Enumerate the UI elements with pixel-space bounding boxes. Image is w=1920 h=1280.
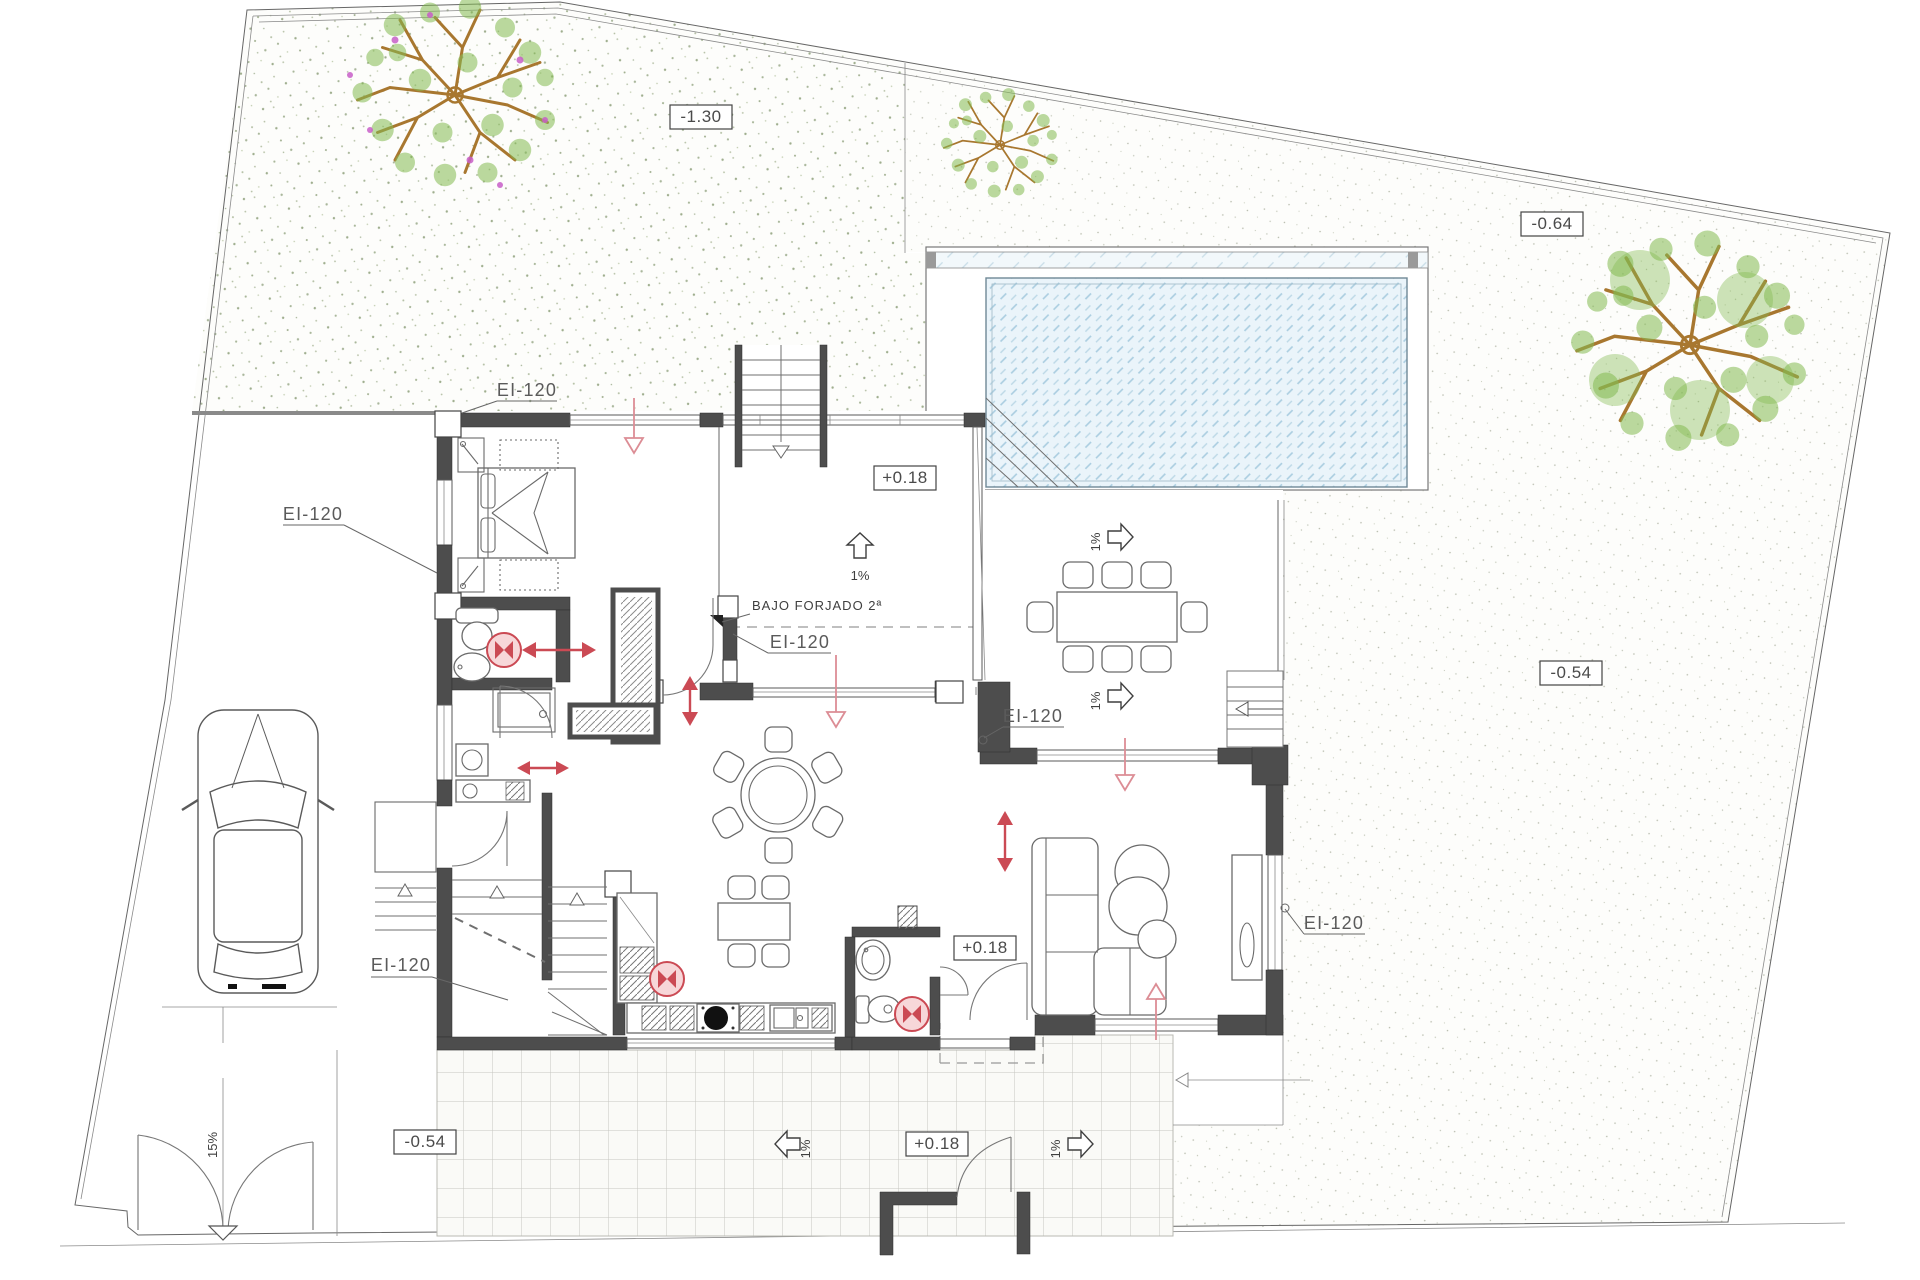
toilet-tank	[456, 608, 498, 623]
ramp-slope-label: 15%	[205, 1132, 220, 1158]
floor-plan-canvas: 1% 1% 1% 1% 1% 15% -1.30 -0.64 -0.54 -0.…	[0, 0, 1920, 1280]
svg-text:BAJO FORJADO 2ª: BAJO FORJADO 2ª	[752, 598, 882, 613]
extractor-fan-symbol	[650, 962, 684, 996]
svg-text:+0.18: +0.18	[914, 1134, 960, 1153]
floor-plan-page: 1% 1% 1% 1% 1% 15% -1.30 -0.64 -0.54 -0.…	[0, 0, 1920, 1280]
level-badge: +0.18	[954, 936, 1016, 960]
svg-text:EI-120: EI-120	[371, 955, 431, 975]
car	[182, 710, 334, 993]
slope-label: 1%	[1048, 1139, 1063, 1158]
slope-label: 1%	[1088, 691, 1103, 710]
extractor-fan-symbol	[895, 997, 929, 1031]
svg-text:EI-120: EI-120	[770, 632, 830, 652]
swimming-pool-basin	[986, 278, 1407, 487]
pool-walkway-band	[926, 252, 1428, 268]
svg-text:-0.64: -0.64	[1531, 214, 1572, 233]
level-badge: -0.64	[1521, 212, 1583, 236]
bed	[478, 468, 575, 558]
level-badge: +0.18	[874, 466, 936, 490]
extractor-fan-symbol	[487, 633, 521, 667]
svg-text:-0.54: -0.54	[404, 1132, 445, 1151]
svg-text:+0.18: +0.18	[882, 468, 928, 487]
kitchen-cabinet	[642, 1006, 666, 1030]
coffee-table	[1138, 920, 1176, 958]
washing-machine	[456, 744, 488, 776]
slope-label: 1%	[1088, 532, 1103, 551]
svg-text:-0.54: -0.54	[1550, 663, 1591, 682]
svg-text:EI-120: EI-120	[497, 380, 557, 400]
level-badge: +0.18	[906, 1132, 968, 1156]
bathroom-sink	[454, 653, 490, 681]
toilet-tank	[856, 996, 869, 1023]
svg-text:EI-120: EI-120	[1304, 913, 1364, 933]
breakfast-table	[718, 876, 790, 967]
porch-garden-stair	[1227, 671, 1283, 747]
kitchen-cabinet	[670, 1006, 694, 1030]
slope-label: 1%	[851, 568, 870, 583]
ei120-label: EI-120	[283, 504, 437, 573]
level-badge: -0.54	[394, 1130, 456, 1154]
driveway	[162, 1007, 337, 1236]
slope-label: 1%	[798, 1139, 813, 1158]
driveway-gate	[138, 1078, 313, 1240]
pool-deck	[926, 247, 1428, 490]
svg-text:+0.18: +0.18	[962, 938, 1008, 957]
tv-fireplace-unit	[1232, 855, 1262, 980]
level-badge: -0.54	[1540, 661, 1602, 685]
svg-text:EI-120: EI-120	[283, 504, 343, 524]
cooktop	[697, 1004, 739, 1032]
level-badge: -1.30	[670, 105, 732, 129]
kitchen-sink	[770, 1005, 832, 1031]
sofa	[1032, 838, 1098, 1015]
svg-text:EI-120: EI-120	[1003, 706, 1063, 726]
svg-text:-1.30: -1.30	[680, 107, 721, 126]
kitchen-cabinet	[740, 1006, 764, 1030]
